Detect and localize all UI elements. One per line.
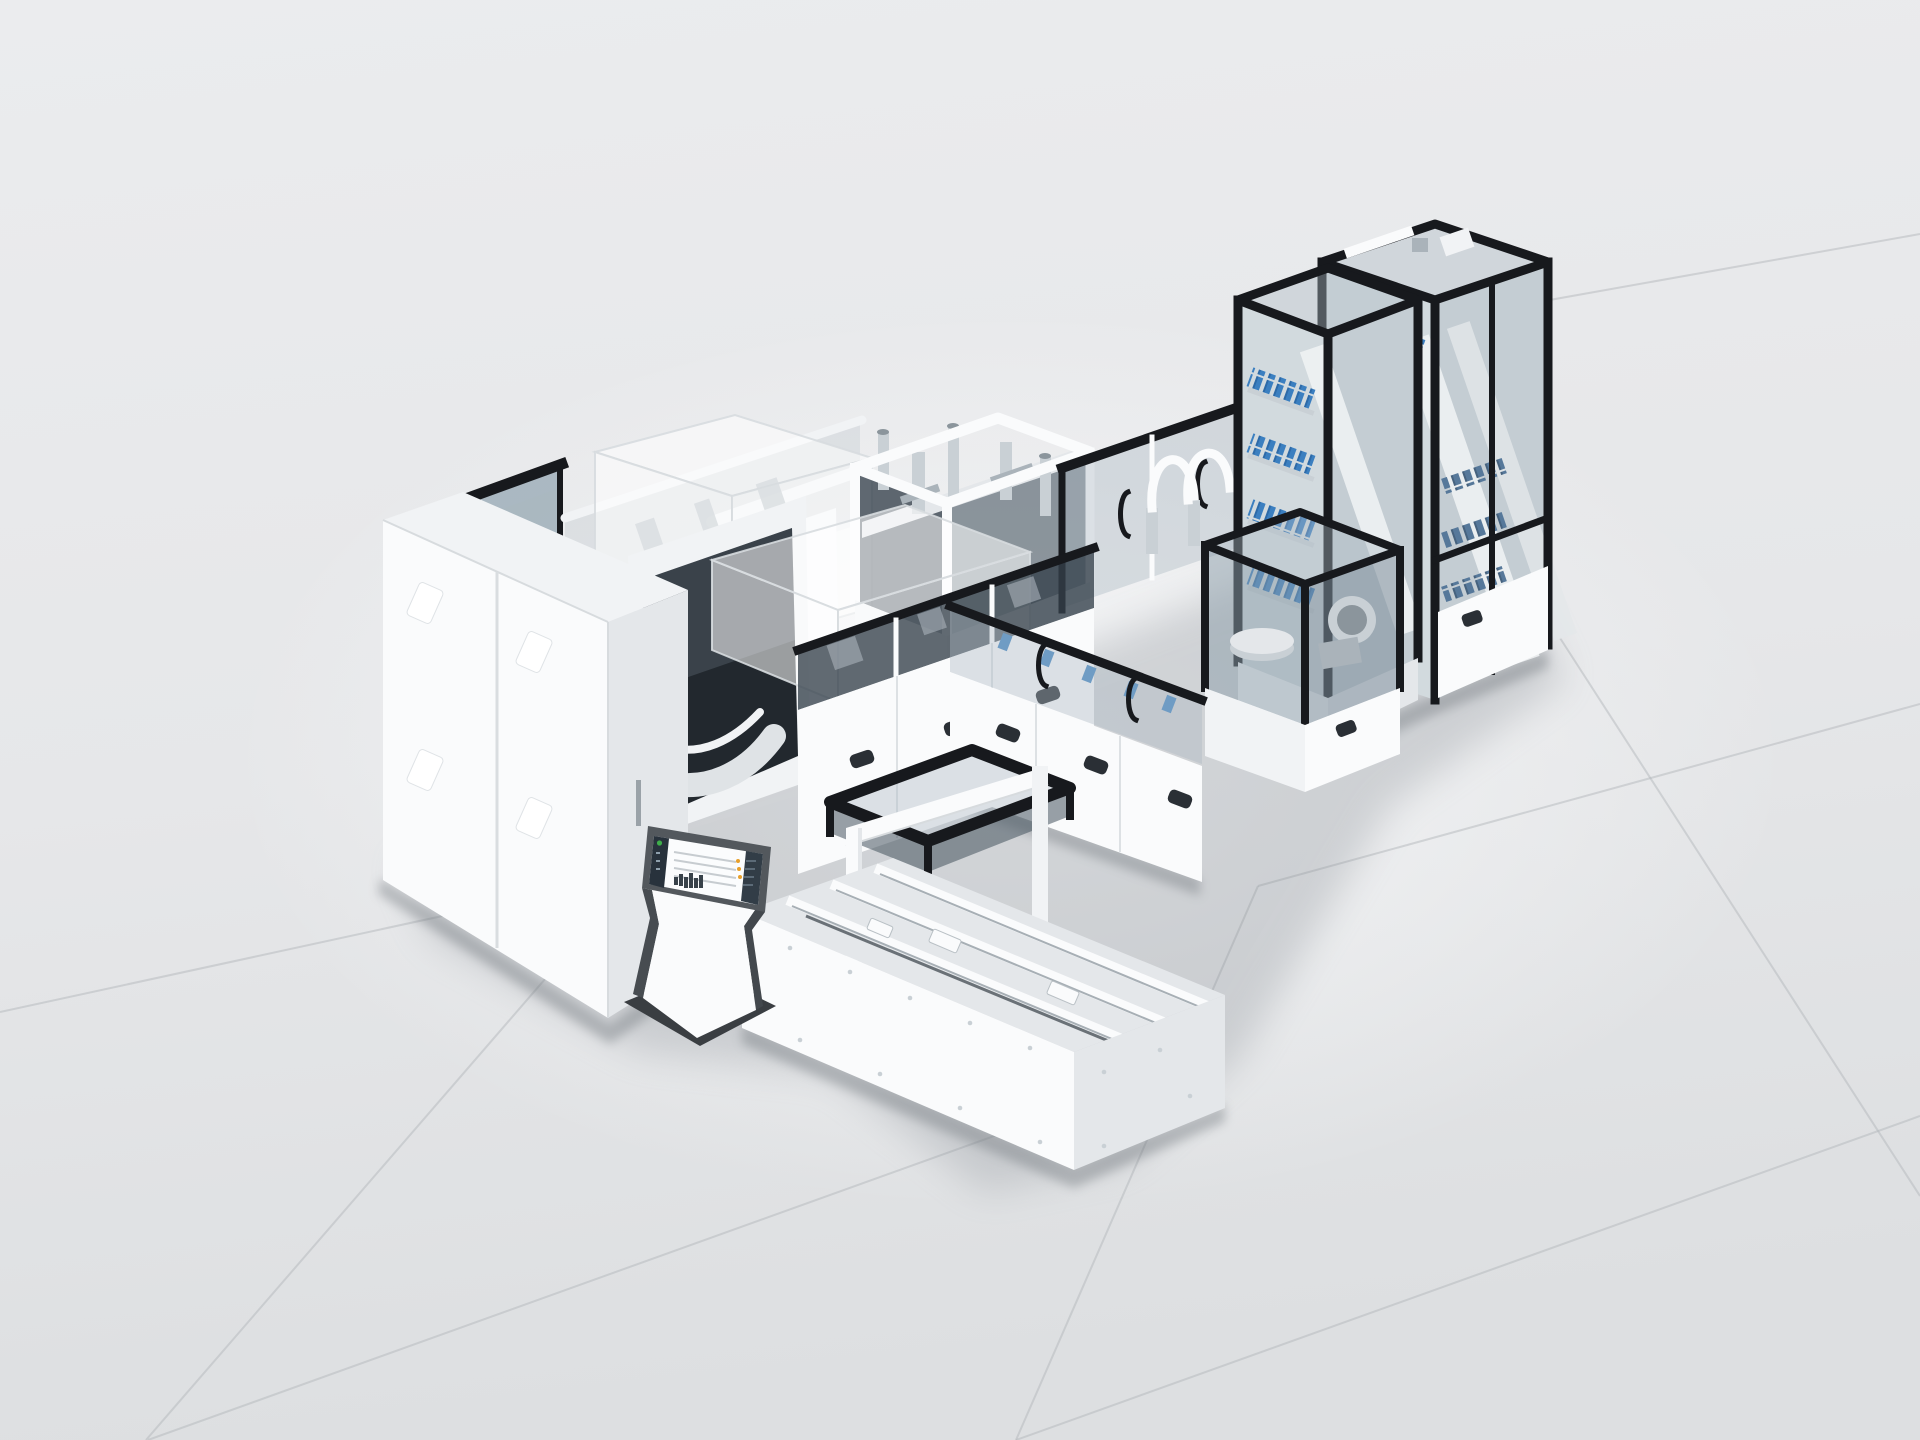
row-status-dot	[738, 875, 742, 879]
portal-right-post	[1032, 766, 1048, 922]
turntable-top	[1230, 628, 1294, 654]
panel-row	[745, 868, 755, 870]
rooftop-fitting	[1412, 238, 1428, 252]
dispense-cylinder	[1146, 508, 1158, 554]
side-door-handle	[636, 780, 641, 826]
actuator-cylinder	[912, 452, 925, 514]
panel-row	[743, 884, 753, 886]
status-dot	[657, 840, 662, 845]
sidebar-icon	[656, 852, 660, 854]
row-status-dot	[736, 859, 740, 863]
sidebar-icon	[656, 860, 660, 862]
actuator-cap	[1039, 453, 1051, 459]
panel-row	[746, 860, 756, 862]
actuator-cap	[877, 429, 889, 435]
sidebar-icon	[656, 868, 660, 870]
panel-row	[744, 876, 754, 878]
assembly-line-illustration	[0, 0, 1920, 1440]
dispense-cylinder	[1188, 500, 1200, 546]
process-wheel-hub	[1337, 605, 1367, 635]
render-stage	[0, 0, 1920, 1440]
row-status-dot	[737, 867, 741, 871]
corner-process-cell	[1205, 512, 1400, 792]
